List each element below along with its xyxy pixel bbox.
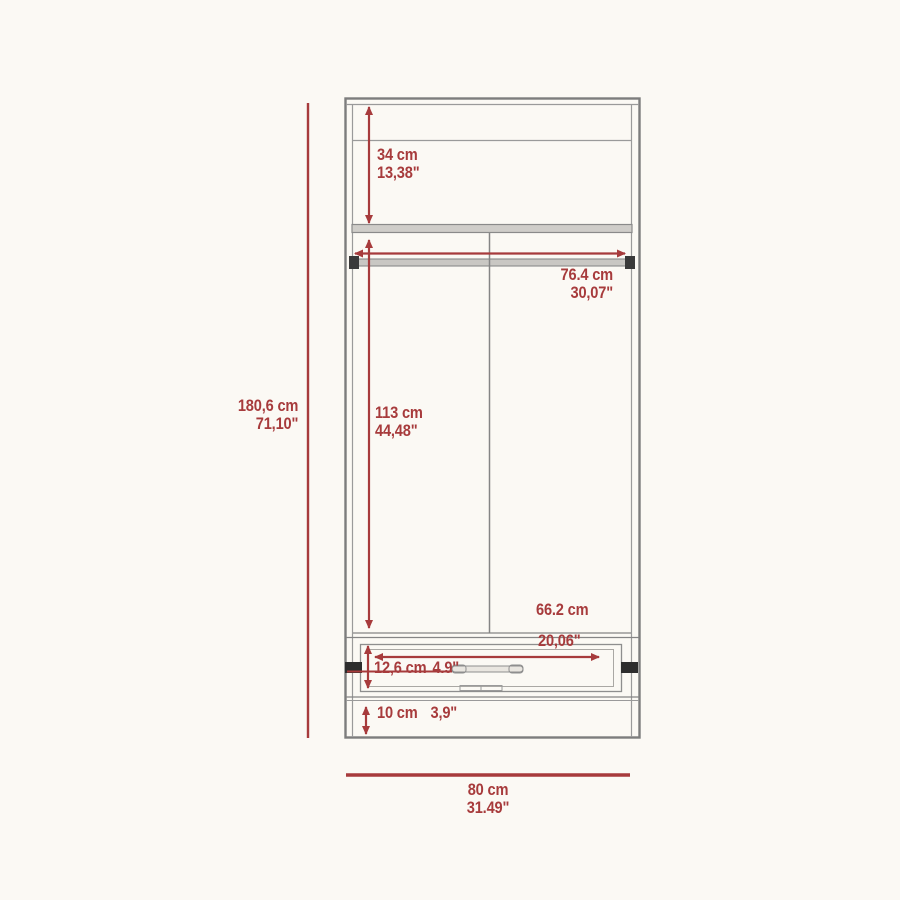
dim-label-top-compartment: 34 cm 13,38" (377, 146, 419, 182)
dim-in: 4.9" (432, 658, 459, 677)
dim-in: 31.49" (411, 799, 566, 817)
dim-in: 44,48" (375, 422, 423, 440)
dim-label-overall-width: 80 cm 31.49" (411, 781, 566, 817)
dim-label-overall-height: 180,6 cm 71,10" (238, 397, 298, 433)
rod-bracket-left (349, 256, 359, 269)
dim-cm: 34 cm (377, 146, 419, 164)
dim-cm: 66.2 cm (536, 600, 588, 619)
drawer-slide-right (621, 662, 638, 673)
dim-in: 30,07" (561, 284, 613, 302)
dim-in: 20,06" (538, 631, 580, 650)
dimension-lines (308, 103, 630, 775)
dim-label-base-height: 10 cm3,9" (377, 704, 457, 722)
base-panel (346, 697, 639, 701)
dim-cm: 12,6 cm (374, 658, 426, 677)
dim-label-drawer-width-cm: 66.2 cm (536, 601, 588, 619)
dim-in: 3,9" (430, 703, 457, 722)
dim-label-drawer-width-in: 20,06" (538, 632, 580, 650)
drawer-handle (452, 665, 523, 673)
dim-cm: 76.4 cm (561, 266, 613, 284)
dim-cm: 113 cm (375, 404, 423, 422)
diagram-linework (0, 0, 900, 900)
dim-label-rod-width: 76.4 cm 30,07" (561, 266, 613, 302)
rod-bracket-right (625, 256, 635, 269)
dim-in: 71,10" (238, 415, 298, 433)
dim-in: 13,38" (377, 164, 419, 182)
dim-label-drawer-height: 12,6 cm4.9" (374, 659, 459, 677)
shelf-bar (352, 225, 632, 233)
wardrobe-dimension-diagram: 180,6 cm 71,10" 34 cm 13,38" 76.4 cm 30,… (0, 0, 900, 900)
dim-cm: 80 cm (411, 781, 566, 799)
dim-cm: 180,6 cm (238, 397, 298, 415)
dim-cm: 10 cm (377, 703, 418, 722)
dim-label-door-height: 113 cm 44,48" (375, 404, 423, 440)
